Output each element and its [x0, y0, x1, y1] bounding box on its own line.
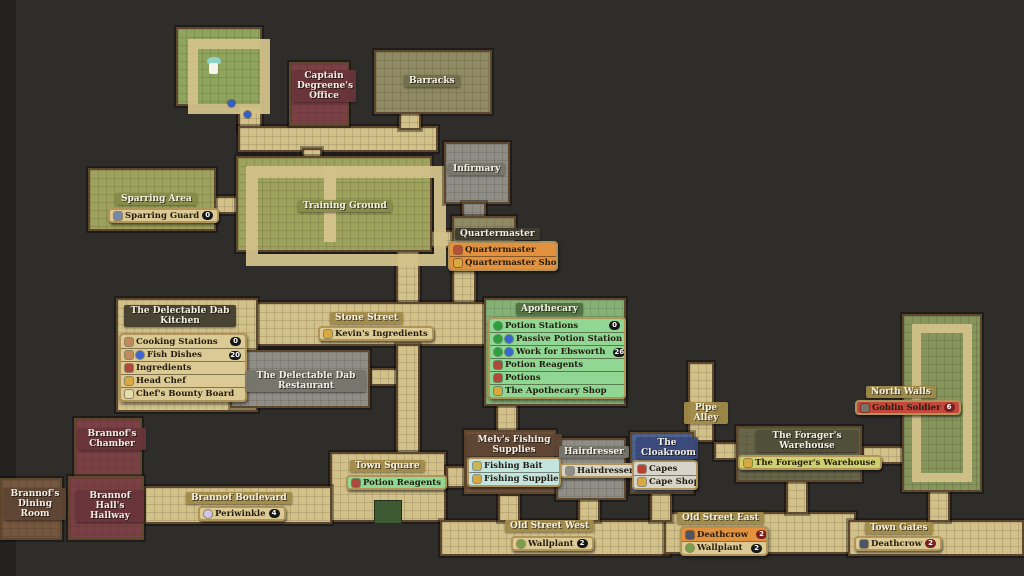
ingredient-icon — [125, 364, 133, 372]
chip-capes[interactable]: Capes — [634, 462, 696, 475]
chip-label: The Apothecary Shop — [505, 386, 607, 396]
label-apothecary: Apothecary — [516, 303, 583, 315]
crow-icon — [860, 540, 868, 548]
player-marker — [209, 63, 218, 74]
enemy-count-badge: 2 — [925, 539, 936, 548]
chip-potion-reagents[interactable]: Potion Reagents — [490, 358, 624, 371]
passive-orb-icon — [505, 348, 513, 356]
scissors-icon — [566, 467, 574, 475]
chip-label: Potion Stations — [505, 321, 578, 331]
chip-sparring-guard[interactable]: Sparring Guard 0 — [108, 208, 219, 223]
shop-bag-icon — [494, 387, 502, 395]
plant-icon — [686, 544, 694, 552]
corridor-restaurant-link[interactable] — [370, 368, 398, 386]
group-old-street-east: Deathcrow 2 Wallplant 2 — [680, 526, 768, 556]
corridor-main-south[interactable] — [396, 344, 420, 456]
corridor-quartermaster-south[interactable] — [452, 268, 476, 304]
chip-deathcrow-east[interactable]: Deathcrow 2 — [682, 528, 766, 541]
corridor-square-east[interactable] — [446, 466, 466, 488]
shop-bag-icon — [638, 478, 646, 486]
shop-bag-icon — [324, 330, 332, 338]
chip-hairdresser[interactable]: Hairdresser — [560, 463, 640, 478]
chip-apothecary-shop[interactable]: The Apothecary Shop — [490, 384, 624, 397]
chip-label: Chef's Bounty Board — [136, 389, 234, 399]
chip-head-chef[interactable]: Head Chef — [121, 374, 245, 387]
chip-label: Potions — [505, 373, 541, 383]
cooking-pot-icon — [125, 351, 133, 359]
label-training-ground: Training Ground — [298, 200, 392, 212]
label-old-street-west: Old Street West — [505, 520, 594, 532]
corridor-pipe-forager-link[interactable] — [714, 442, 738, 460]
map-marker-blue — [244, 111, 251, 118]
passive-orb-icon — [136, 351, 144, 359]
chip-foragers-warehouse[interactable]: The Forager's Warehouse — [738, 455, 882, 470]
corridor-hairdresser-south[interactable] — [578, 498, 600, 522]
chip-label: Passive Potion Station — [516, 334, 622, 344]
chip-label: Wallplant — [697, 543, 743, 553]
chip-periwinkle[interactable]: Periwinkle 4 — [198, 506, 286, 521]
chip-label: Cape Shop — [649, 477, 698, 487]
crow-icon — [686, 531, 694, 539]
label-north-walls: North Walls — [866, 386, 936, 398]
reagent-icon — [494, 361, 502, 369]
chip-label: Deathcrow — [871, 539, 922, 549]
shop-bag-icon — [454, 259, 462, 267]
chip-label: The Forager's Warehouse — [755, 458, 876, 468]
potion-drop-icon — [494, 348, 502, 356]
training-path-ring — [246, 166, 446, 266]
reagent-icon — [352, 479, 360, 487]
chip-fishing-supplies[interactable]: Fishing Supplies — [469, 472, 559, 485]
count-badge: 2 — [751, 544, 762, 553]
town-square-planter — [374, 500, 402, 524]
label-town-gates: Town Gates — [865, 522, 933, 534]
count-badge: 0 — [202, 211, 213, 220]
enemy-count-badge: 2 — [756, 530, 767, 539]
count-badge: 0 — [609, 321, 620, 330]
corridor-apothecary-south[interactable] — [496, 404, 518, 432]
chip-label: Goblin Soldier — [872, 403, 941, 413]
shop-bag-icon — [473, 475, 481, 483]
label-quartermaster: Quartermaster — [455, 228, 540, 240]
chip-label: Cooking Stations — [136, 337, 218, 347]
label-brannofs-dining-room: Brannof's Dining Room — [4, 488, 66, 520]
chip-fishing-bait[interactable]: Fishing Bait — [469, 459, 559, 472]
chip-label: Quartermaster — [465, 245, 535, 255]
cooking-pot-icon — [125, 338, 133, 346]
count-badge: 2 — [577, 539, 588, 548]
label-foragers-warehouse: The Forager's Warehouse — [756, 430, 858, 452]
chip-fish-dishes[interactable]: Fish Dishes 20 — [121, 348, 245, 361]
chip-label: Sparring Guard — [125, 211, 199, 221]
chip-label: Capes — [649, 464, 677, 474]
chip-ingredients[interactable]: Ingredients — [121, 361, 245, 374]
group-melvs: Fishing Bait Fishing Supplies — [467, 457, 561, 487]
flower-icon — [204, 510, 212, 518]
label-hairdresser: Hairdresser — [559, 446, 629, 458]
bounty-board-icon — [125, 390, 133, 398]
label-dab-restaurant: The Delectable Dab Restaurant — [246, 370, 366, 392]
shop-bag-icon — [744, 459, 752, 467]
chip-quartermaster-shop[interactable]: Quartermaster Shop — [450, 256, 556, 269]
chip-work-for-ebsworth[interactable]: Work for Ebsworth 26 — [490, 345, 624, 358]
chip-label: Ingredients — [136, 363, 191, 373]
group-quartermaster: Quartermaster Quartermaster Shop — [448, 241, 558, 271]
chip-label: Quartermaster Shop — [465, 258, 558, 268]
chip-label: Periwinkle — [215, 509, 266, 519]
potion-drop-icon — [494, 322, 502, 330]
count-badge: 20 — [229, 351, 241, 360]
plant-icon — [517, 540, 525, 548]
chip-cape-shop[interactable]: Cape Shop — [634, 475, 696, 488]
label-captain-degreenes-office: Captain Degreene's Office — [292, 70, 356, 102]
group-cloakroom: Capes Cape Shop — [632, 460, 698, 490]
chip-label: Deathcrow — [697, 530, 748, 540]
cape-icon — [638, 465, 646, 473]
count-badge: 4 — [269, 509, 280, 518]
chip-deathcrow-gates[interactable]: Deathcrow 2 — [854, 536, 942, 551]
person-icon — [454, 246, 462, 254]
chip-quartermaster[interactable]: Quartermaster — [450, 243, 556, 256]
label-melvs-fishing-supplies: Melv's Fishing Supplies — [466, 434, 562, 456]
chip-label: Fishing Bait — [484, 461, 542, 471]
label-pipe-alley: Pipe Alley — [684, 402, 728, 424]
label-old-street-east: Old Street East — [677, 512, 764, 524]
label-sparring-area: Sparring Area — [116, 193, 197, 205]
corridor-cloakroom-south[interactable] — [650, 492, 672, 522]
chip-label: Potion Reagents — [505, 360, 583, 370]
chip-passive-potion-station[interactable]: Passive Potion Station 26 — [490, 332, 624, 345]
map-marker-blue — [228, 100, 235, 107]
count-badge: 0 — [230, 337, 241, 346]
label-brannof-halls-hallway: Brannof Hall's Hallway — [76, 490, 144, 522]
bait-icon — [473, 462, 481, 470]
town-map: Captain Degreene's Office Barracks Sparr… — [0, 0, 1024, 576]
chip-label: Work for Ebsworth — [516, 347, 605, 357]
potion-drop-icon — [494, 335, 502, 343]
label-brannof-boulevard: Brannof Boulevard — [186, 492, 292, 504]
passive-orb-icon — [505, 335, 513, 343]
label-town-square: Town Square — [350, 460, 425, 472]
label-stone-street: Stone Street — [330, 312, 403, 324]
chip-label: Fish Dishes — [147, 350, 202, 360]
count-badge: 26 — [613, 348, 625, 357]
chip-cooking-stations[interactable]: Cooking Stations 0 — [121, 335, 245, 348]
label-infirmary: Infirmary — [448, 163, 505, 175]
chip-label: Head Chef — [136, 376, 186, 386]
group-apothecary: Potion Stations 0 Passive Potion Station… — [488, 317, 626, 399]
chip-label: Wallplant — [528, 539, 574, 549]
chip-label: Hairdresser — [577, 466, 634, 476]
corridor-walls-south[interactable] — [928, 490, 950, 522]
chip-potions[interactable]: Potions — [490, 371, 624, 384]
chip-potion-reagents-square[interactable]: Potion Reagents — [346, 475, 447, 490]
room-courtyard[interactable] — [176, 27, 262, 106]
goblin-icon — [861, 404, 869, 412]
chip-label: Kevin's Ingredients — [335, 329, 428, 339]
guard-icon — [114, 212, 122, 220]
chip-chefs-bounty-board[interactable]: Chef's Bounty Board — [121, 387, 245, 400]
chip-potion-stations[interactable]: Potion Stations 0 — [490, 319, 624, 332]
label-cloakroom: The Cloakroom — [636, 437, 698, 459]
corridor-barracks-stub[interactable] — [399, 112, 421, 130]
group-dab-kitchen: Cooking Stations 0 Fish Dishes 20 Ingred… — [119, 333, 247, 402]
chip-label: Fishing Supplies — [484, 474, 561, 484]
label-brannofs-chamber: Brannof's Chamber — [78, 428, 146, 450]
potion-icon — [494, 374, 502, 382]
corridor-melvs-south[interactable] — [498, 494, 520, 522]
chef-bag-icon — [125, 377, 133, 385]
label-barracks: Barracks — [404, 75, 460, 87]
enemy-count-badge: 6 — [944, 403, 955, 412]
chip-label: Potion Reagents — [363, 478, 441, 488]
chip-goblin-soldier[interactable]: Goblin Soldier 6 — [855, 400, 961, 415]
chip-wallplant-west[interactable]: Wallplant 2 — [511, 536, 594, 551]
label-dab-kitchen: The Delectable Dab Kitchen — [124, 305, 236, 327]
corridor-forager-south[interactable] — [786, 480, 808, 514]
chip-kevins-ingredients[interactable]: Kevin's Ingredients — [318, 326, 434, 341]
chip-wallplant-east[interactable]: Wallplant 2 — [682, 541, 766, 554]
